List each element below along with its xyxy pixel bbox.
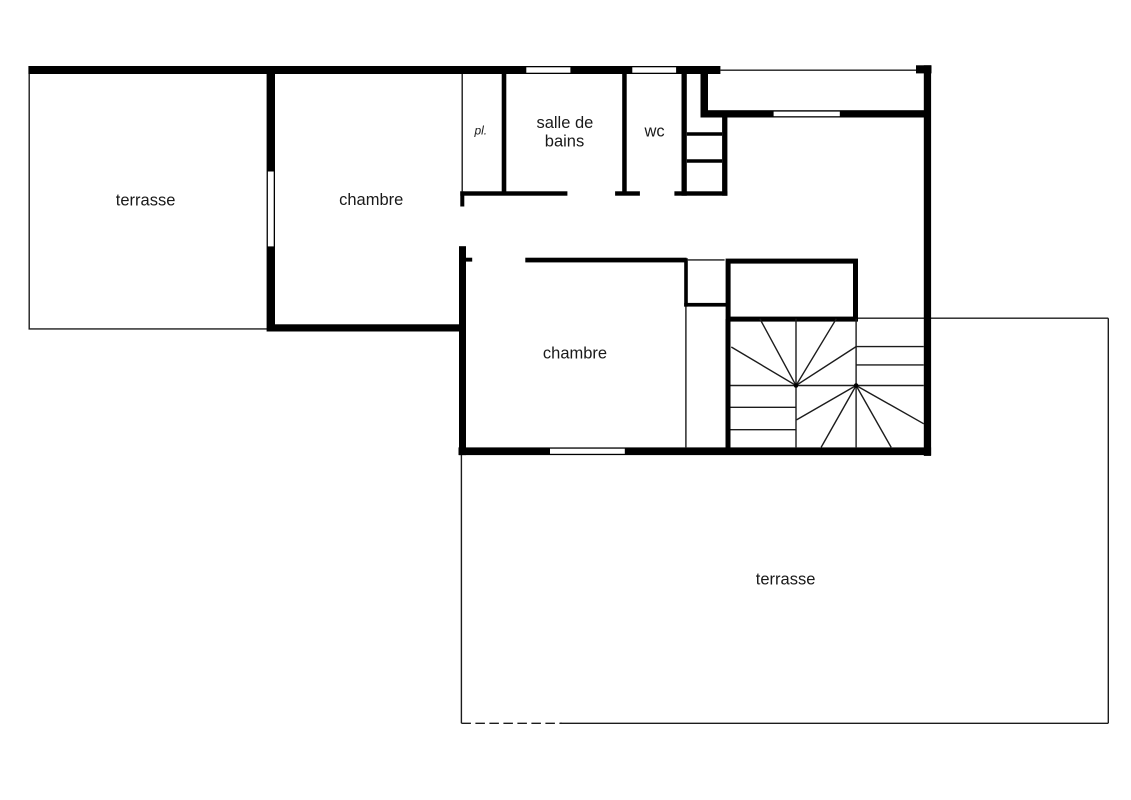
- svg-text:chambre: chambre: [339, 191, 403, 209]
- svg-text:terrasse: terrasse: [756, 571, 816, 589]
- svg-text:pl.: pl.: [473, 123, 487, 137]
- svg-text:terrasse: terrasse: [116, 191, 176, 209]
- svg-text:wc: wc: [644, 122, 665, 140]
- svg-text:bains: bains: [545, 133, 584, 151]
- svg-text:salle de: salle de: [536, 114, 593, 132]
- svg-text:chambre: chambre: [543, 344, 607, 362]
